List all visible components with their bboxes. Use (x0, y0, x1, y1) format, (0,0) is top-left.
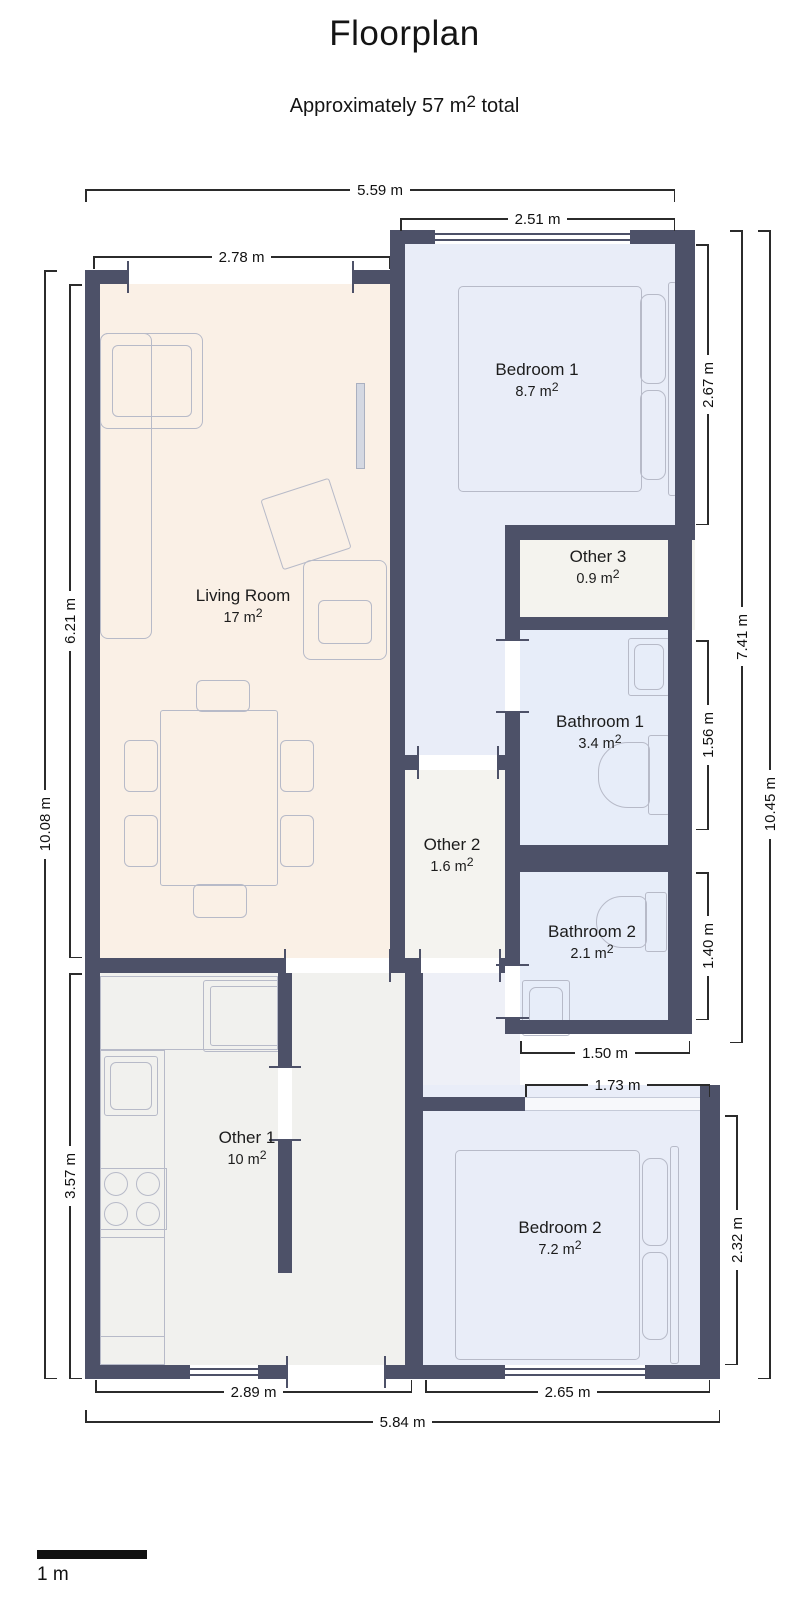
room-area: 10 m2 (219, 1152, 276, 1168)
dining-chair (280, 740, 314, 792)
toilet-tank (648, 735, 670, 815)
fridge-inner (210, 986, 283, 1046)
bathroom1-door-opening (505, 640, 520, 712)
living-window-opening (128, 270, 353, 284)
wall-bedroom1-left (390, 230, 405, 973)
sink-basin (634, 644, 664, 690)
wall-bedroom1-right (675, 230, 695, 540)
armchair-cushion (318, 600, 372, 644)
wall-bedroom2-right (700, 1085, 720, 1379)
bedroom2-wide-opening (525, 1097, 700, 1111)
room-area: 3.4 m2 (556, 736, 644, 752)
label-bathroom-2: Bathroom 2 2.1 m2 (548, 922, 636, 962)
wall-bath-block-right (668, 535, 692, 1034)
page-title: Floorplan (0, 14, 809, 54)
bed-pillow (642, 1252, 668, 1340)
stove-burner (104, 1172, 128, 1196)
stove-burner (104, 1202, 128, 1226)
wall-exterior-left (85, 270, 100, 1379)
room-area: 8.7 m2 (495, 384, 578, 400)
kitchen-sink-basin (110, 1062, 152, 1110)
room-area: 1.6 m2 (424, 859, 481, 875)
label-bedroom-1: Bedroom 1 8.7 m2 (495, 360, 578, 400)
other2-passage-opening (420, 958, 500, 973)
stove-burner (136, 1202, 160, 1226)
label-other-2: Other 2 1.6 m2 (424, 835, 481, 875)
wall-bedroom1-other3 (505, 525, 695, 540)
dining-table (160, 710, 278, 886)
dining-chair (124, 740, 158, 792)
wall-other3-bathroom1 (505, 617, 668, 630)
wall-bathroom1-bathroom2 (505, 845, 668, 872)
label-other-3: Other 3 0.9 m2 (570, 547, 627, 587)
label-other-1: Other 1 10 m2 (219, 1128, 276, 1168)
bed-pillow (640, 390, 666, 480)
wall-bedroom2-top (423, 1097, 525, 1111)
dining-chair (193, 884, 247, 918)
bed-pillow (642, 1158, 668, 1246)
bed-pillow (640, 294, 666, 384)
scale-bar-label: 1 m (37, 1564, 69, 1586)
sofa-cushion (112, 345, 192, 417)
corridor-door-opening (418, 755, 498, 770)
room-name: Other 3 (570, 547, 627, 567)
room-area: 0.9 m2 (570, 571, 627, 587)
room-name: Other 2 (424, 835, 481, 855)
dining-chair (280, 815, 314, 867)
room-area: 2.1 m2 (548, 946, 636, 962)
subtitle-text: Approximately 57 m (290, 95, 467, 117)
room-name: Bedroom 2 (518, 1218, 601, 1238)
kitchen-cabinet (100, 1237, 165, 1337)
room-bedroom-1-corridor (390, 525, 520, 770)
kitchen-divider-opening (278, 1067, 292, 1140)
subtitle-sup: 2 (466, 92, 475, 111)
bedroom2-window (505, 1365, 645, 1379)
wall-bedroom2-left (405, 973, 423, 1379)
wall-bathroom2-bottom (505, 1020, 692, 1034)
room-name: Bathroom 1 (556, 712, 644, 732)
kitchen-window (190, 1365, 258, 1379)
bathroom2-door-opening (505, 965, 520, 1018)
room-area: 17 m2 (196, 610, 291, 626)
dining-chair (196, 680, 250, 712)
label-bedroom-2: Bedroom 2 7.2 m2 (518, 1218, 601, 1258)
stove-burner (136, 1172, 160, 1196)
tv-icon (356, 383, 365, 469)
subtitle-tail: total (476, 95, 519, 117)
bedroom1-window (435, 230, 630, 244)
toilet-tank (645, 892, 667, 952)
entrance-door-opening (287, 1365, 385, 1379)
label-living-room: Living Room 17 m2 (196, 586, 291, 626)
room-area: 7.2 m2 (518, 1242, 601, 1258)
room-name: Living Room (196, 586, 291, 606)
floorplan-canvas: Floorplan Approximately 57 m2 total (0, 0, 809, 1600)
bed-headboard (670, 1146, 679, 1364)
room-name: Other 1 (219, 1128, 276, 1148)
dining-chair (124, 815, 158, 867)
living-kitchen-opening (285, 958, 390, 973)
page-subtitle: Approximately 57 m2 total (0, 95, 809, 118)
room-name: Bedroom 1 (495, 360, 578, 380)
label-bathroom-1: Bathroom 1 3.4 m2 (556, 712, 644, 752)
room-name: Bathroom 2 (548, 922, 636, 942)
scale-bar (37, 1550, 147, 1559)
